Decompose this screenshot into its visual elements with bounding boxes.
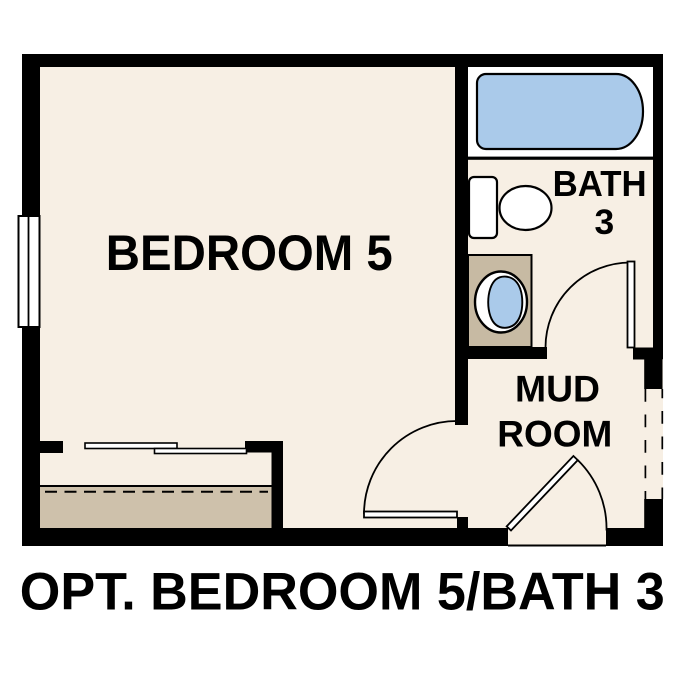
svg-text:ROOM: ROOM	[497, 414, 612, 455]
svg-text:BEDROOM 5: BEDROOM 5	[106, 224, 393, 281]
svg-text:MUD: MUD	[515, 368, 600, 409]
svg-text:BATH: BATH	[553, 163, 647, 204]
svg-text:OPT. BEDROOM 5/BATH 3: OPT. BEDROOM 5/BATH 3	[20, 563, 665, 622]
svg-text:3: 3	[595, 202, 615, 242]
